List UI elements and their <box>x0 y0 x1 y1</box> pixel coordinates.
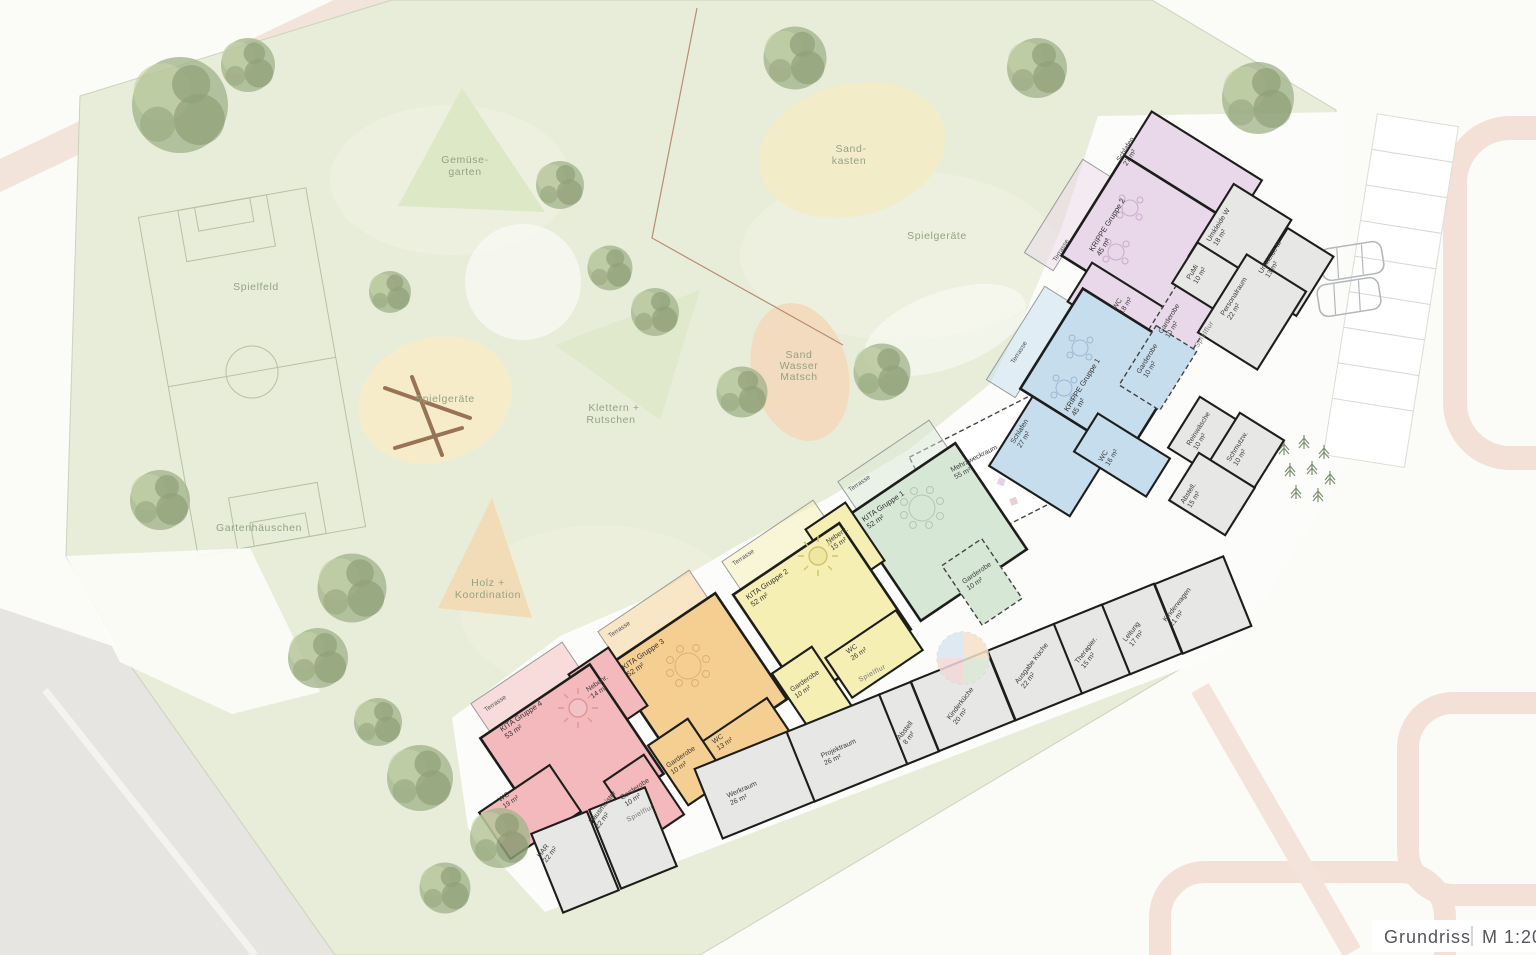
label-klettern-rutschen: Klettern +Rutschen <box>586 402 639 426</box>
road-block-right-top <box>1455 128 1536 458</box>
title-block: Grundriss M 1:200 <box>1372 920 1536 952</box>
label-gartenhaeuschen: Gartenhäuschen <box>216 522 302 534</box>
courtyard-circle <box>937 632 989 684</box>
road-block-right-bottom <box>1408 703 1536 895</box>
road-diagonal <box>1200 688 1352 952</box>
drawing-scale: M 1:200 <box>1482 927 1536 947</box>
paved-circle <box>465 224 581 340</box>
label-sandkasten: Sand-kasten <box>832 143 867 167</box>
label-gemuesegarten: Gemüse-garten <box>441 154 488 178</box>
label-spielfeld: Spielfeld <box>233 281 279 293</box>
site-plan-drawing: Terrasse KRIPPE Gruppe 245 m² Schlafen27… <box>0 0 1536 955</box>
floor-plan-page: Terrasse KRIPPE Gruppe 245 m² Schlafen27… <box>0 0 1536 955</box>
drawing-title: Grundriss <box>1384 927 1471 947</box>
label-spielgeraete-west: Spielgeräte <box>415 393 475 405</box>
label-spielgeraete-east: Spielgeräte <box>907 230 967 242</box>
